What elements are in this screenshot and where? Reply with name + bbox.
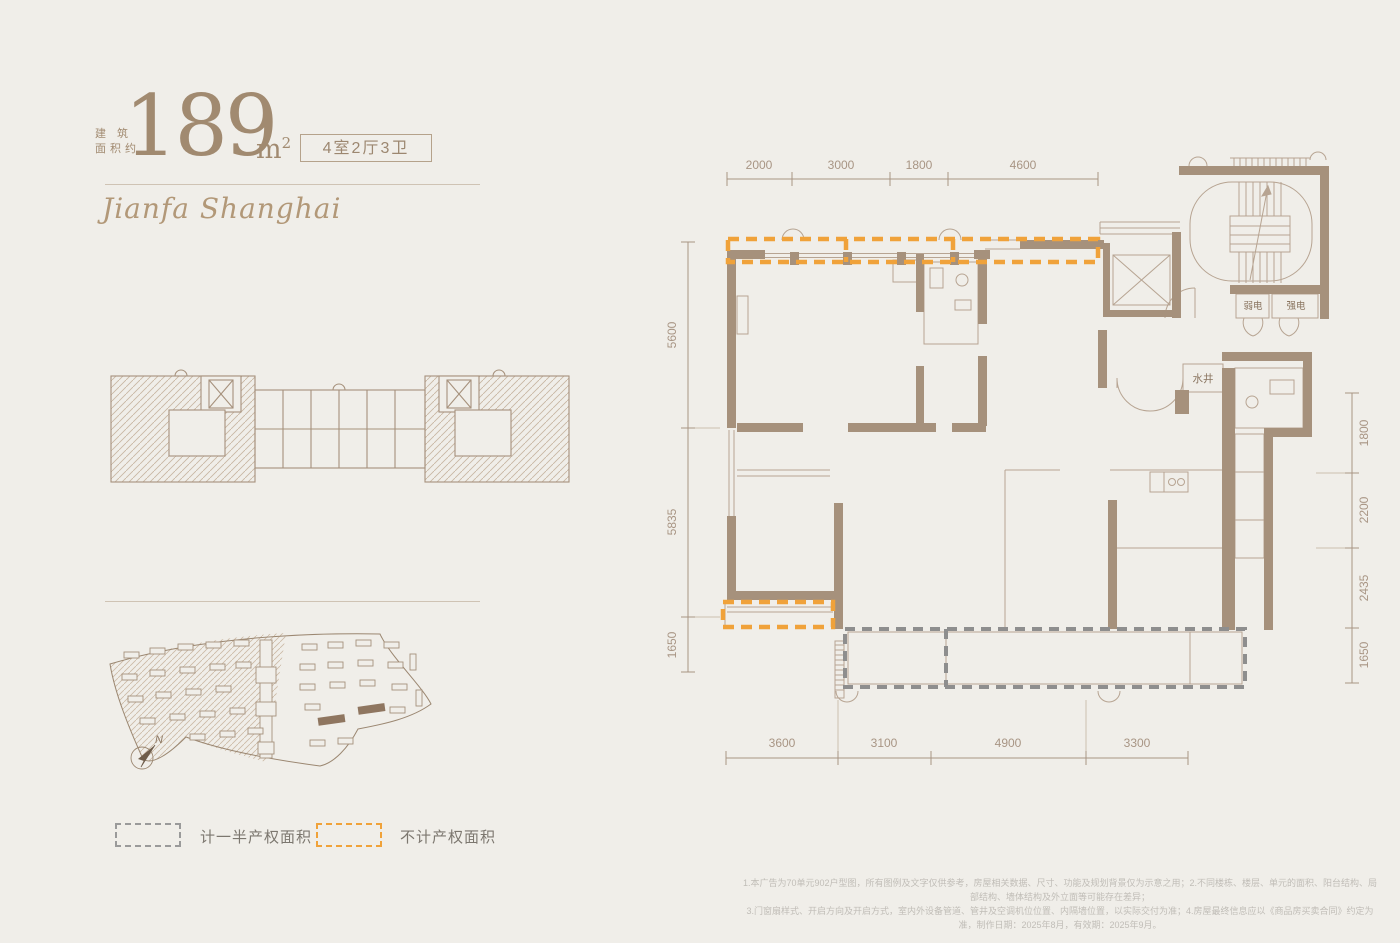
section-divider xyxy=(105,601,480,602)
strong-power-label: 强电 xyxy=(1286,300,1306,312)
disclaimer-line2: 3.门窗扇样式、开启方向及开启方式，室内外设备管道、管井及空调机位位置、内隔墙位… xyxy=(742,904,1378,932)
layout-badge: 4室2厅3卫 xyxy=(300,134,432,162)
disclaimer-line1: 1.本广告为70单元902户型图，所有图例及文字仅供参考，房屋相关数据、尺寸、功… xyxy=(742,876,1378,904)
area-unit-m: m xyxy=(256,134,282,165)
legend-swatch-half-area xyxy=(115,823,181,847)
room-labels: 弱电 强电 水井 xyxy=(1193,300,1306,385)
floorplan-sheet: 建 筑 面积约 189 m2 4室2厅3卫 Jianfa Shanghai xyxy=(0,0,1400,943)
dim-right-2: 2200 xyxy=(1357,496,1371,523)
legend-swatch-excluded-area xyxy=(316,823,382,847)
dim-bottom-2: 3100 xyxy=(871,736,898,750)
half-area-overlay xyxy=(845,629,1245,687)
legend-label-half-area: 计一半产权面积 xyxy=(200,826,312,847)
dim-left-1: 5600 xyxy=(665,321,679,348)
dim-top-1: 2000 xyxy=(746,158,773,172)
key-plan-outline xyxy=(111,370,569,482)
stair-core xyxy=(1113,182,1318,411)
weak-power-label: 弱电 xyxy=(1243,300,1263,312)
disclaimer: 1.本广告为70单元902户型图，所有图例及文字仅供参考，房屋相关数据、尺寸、功… xyxy=(742,876,1378,932)
dim-bottom-1: 3600 xyxy=(769,736,796,750)
main-floor-plan: 弱电 强电 水井 xyxy=(650,135,1370,795)
dim-top-2: 3000 xyxy=(828,158,855,172)
area-unit: m2 xyxy=(256,134,291,165)
site-plan: N xyxy=(100,612,445,787)
dim-top-4: 4600 xyxy=(1010,158,1037,172)
dim-top-3: 1800 xyxy=(906,158,933,172)
water-shaft-label: 水井 xyxy=(1193,372,1214,385)
dim-right-1: 1800 xyxy=(1357,419,1371,446)
north-label: N xyxy=(155,734,163,746)
dim-right-4: 1650 xyxy=(1357,641,1371,668)
dim-bottom-3: 4900 xyxy=(995,736,1022,750)
legend-label-excluded-area: 不计产权面积 xyxy=(400,826,496,847)
dim-right-3: 2435 xyxy=(1357,574,1371,601)
site-highlighted-buildings xyxy=(318,703,386,726)
dim-left-3: 1650 xyxy=(665,631,679,658)
area-unit-sup: 2 xyxy=(282,134,292,152)
key-plan xyxy=(105,366,575,492)
excluded-area-overlay xyxy=(723,239,1098,627)
area-value: 189 xyxy=(124,84,275,168)
dim-left-2: 5835 xyxy=(665,508,679,535)
dim-bottom-4: 3300 xyxy=(1124,736,1151,750)
header-divider xyxy=(105,184,480,185)
brand-script: Jianfa Shanghai xyxy=(102,192,341,225)
